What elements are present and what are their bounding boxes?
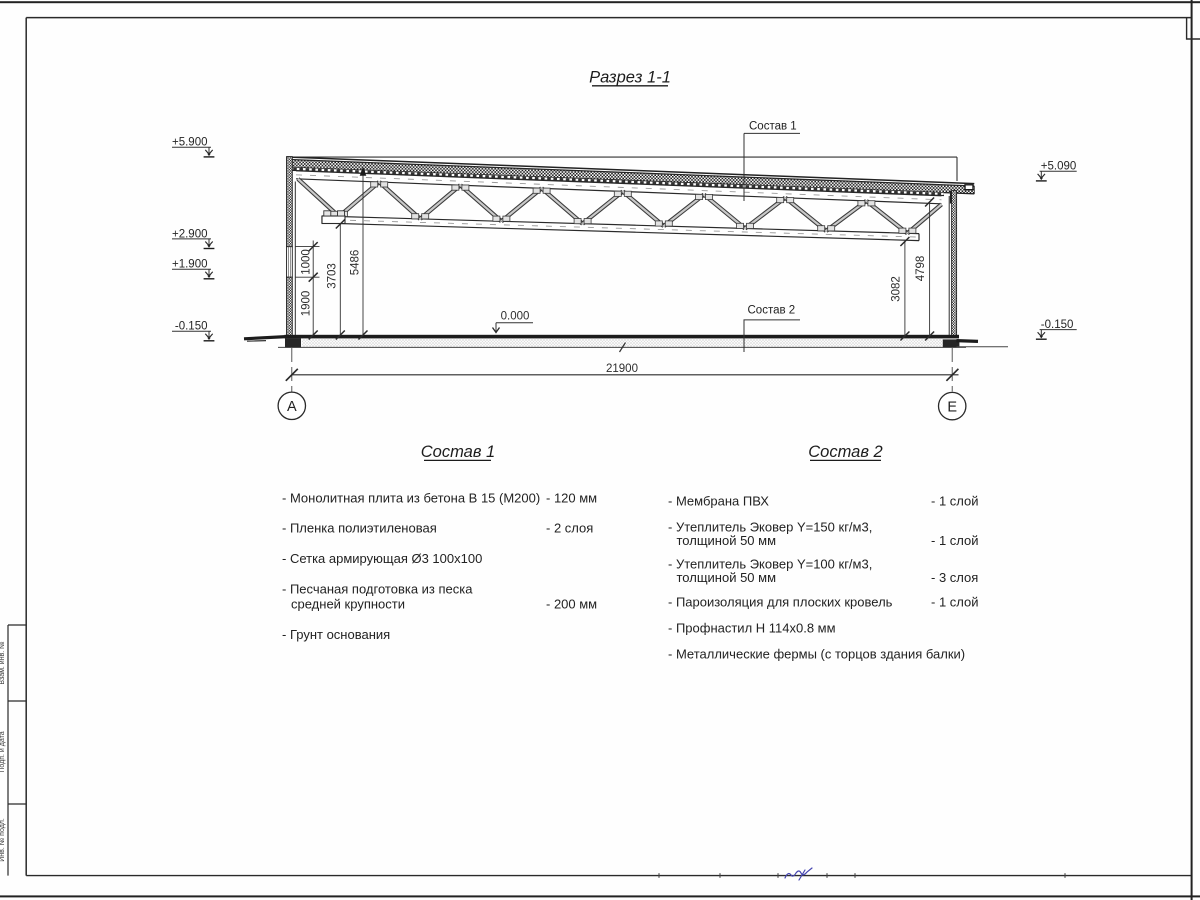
svg-text:5486: 5486: [350, 250, 362, 276]
svg-text:- 3 слоя: - 3 слоя: [931, 570, 978, 585]
svg-text:толщиной 50 мм: толщиной 50 мм: [677, 533, 777, 548]
svg-text:Состав 1: Состав 1: [421, 443, 495, 461]
svg-text:- 2 слоя: - 2 слоя: [546, 521, 593, 536]
svg-text:Взам. инв. №: Взам. инв. №: [0, 641, 6, 684]
svg-text:1000: 1000: [301, 249, 313, 275]
svg-text:Состав 1: Состав 1: [749, 121, 797, 133]
svg-text:А: А: [287, 399, 297, 415]
svg-text:3703: 3703: [327, 263, 339, 289]
svg-text:- Грунт основания: - Грунт основания: [282, 627, 390, 642]
svg-text:0.000: 0.000: [501, 311, 530, 323]
svg-text:- Песчаная подготовка из песка: - Песчаная подготовка из песка: [282, 582, 473, 597]
svg-text:- Профнастил Н 114х0.8 мм: - Профнастил Н 114х0.8 мм: [668, 621, 836, 636]
svg-text:- 120 мм: - 120 мм: [546, 491, 597, 506]
svg-text:21900: 21900: [606, 363, 638, 375]
svg-text:Инв. № подл.: Инв. № подл.: [0, 818, 6, 862]
svg-text:3082: 3082: [891, 276, 903, 302]
svg-text:- 1 слой: - 1 слой: [931, 533, 979, 548]
svg-text:1900: 1900: [301, 291, 313, 317]
svg-text:4798: 4798: [915, 256, 927, 282]
svg-text:Состав 2: Состав 2: [748, 305, 796, 317]
svg-text:- 1 слой: - 1 слой: [931, 494, 979, 509]
svg-text:- Сетка армирующая Ø3 100х100: - Сетка армирующая Ø3 100х100: [282, 551, 482, 566]
svg-text:Разрез 1-1: Разрез 1-1: [589, 69, 671, 87]
svg-text:- Металлические фермы (с торцо: - Металлические фермы (с торцов здания б…: [668, 647, 965, 662]
svg-text:толщиной 50 мм: толщиной 50 мм: [677, 570, 777, 585]
svg-text:- Монолитная плита из бетона В: - Монолитная плита из бетона В 15 (М200): [282, 491, 540, 506]
svg-text:Подп. и дата: Подп. и дата: [0, 731, 6, 772]
svg-text:средней крупности: средней крупности: [291, 597, 405, 612]
svg-text:- 1 слой: - 1 слой: [931, 595, 979, 610]
svg-text:- 200 мм: - 200 мм: [546, 597, 597, 612]
svg-text:Состав 2: Состав 2: [808, 443, 882, 461]
svg-text:- Пленка полиэтиленовая: - Пленка полиэтиленовая: [282, 521, 437, 536]
svg-text:- Мембрана ПВХ: - Мембрана ПВХ: [668, 494, 769, 509]
svg-text:Е: Е: [947, 399, 957, 415]
svg-text:- Пароизоляция для плоских кро: - Пароизоляция для плоских кровель: [668, 595, 893, 610]
